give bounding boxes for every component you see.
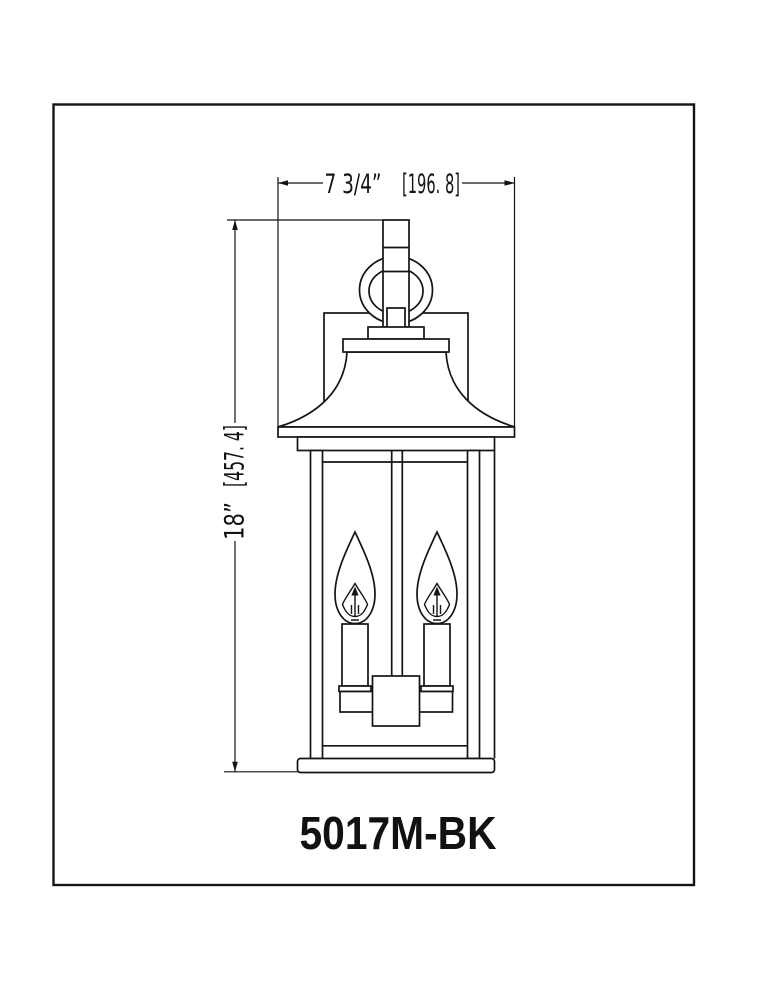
roof-plate: [278, 427, 515, 437]
height-metric-label: [457. 4]: [220, 425, 251, 487]
frame-post-right: [468, 451, 480, 759]
candle-sleeve-left: [342, 624, 368, 686]
cap-step: [368, 327, 424, 339]
arrowhead-up-icon: [232, 220, 238, 230]
base-plate: [298, 759, 495, 773]
arrowhead-down-icon: [232, 762, 238, 772]
bell-canopy: [278, 352, 515, 427]
model-number-label: 5017M-BK: [300, 807, 497, 859]
cluster-box: [373, 676, 420, 726]
height-imperial-label: 18”: [220, 502, 251, 540]
center-stem: [392, 451, 403, 677]
cap-plate: [343, 339, 449, 352]
width-metric-label: [196. 8]: [402, 169, 460, 200]
frame-post-left: [311, 451, 323, 759]
spec-sheet-page: 7 3/4” [196. 8] [457. 4] 18”: [0, 0, 773, 1000]
arrowhead-right-icon: [505, 180, 515, 186]
roof-band: [298, 437, 495, 451]
arrowhead-left-icon: [278, 180, 288, 186]
width-imperial-label: 7 3/4”: [325, 169, 382, 200]
finial-connector: [387, 308, 405, 328]
wall-lantern-technical-drawing: [278, 220, 515, 773]
candle-sleeve-right: [424, 624, 450, 686]
